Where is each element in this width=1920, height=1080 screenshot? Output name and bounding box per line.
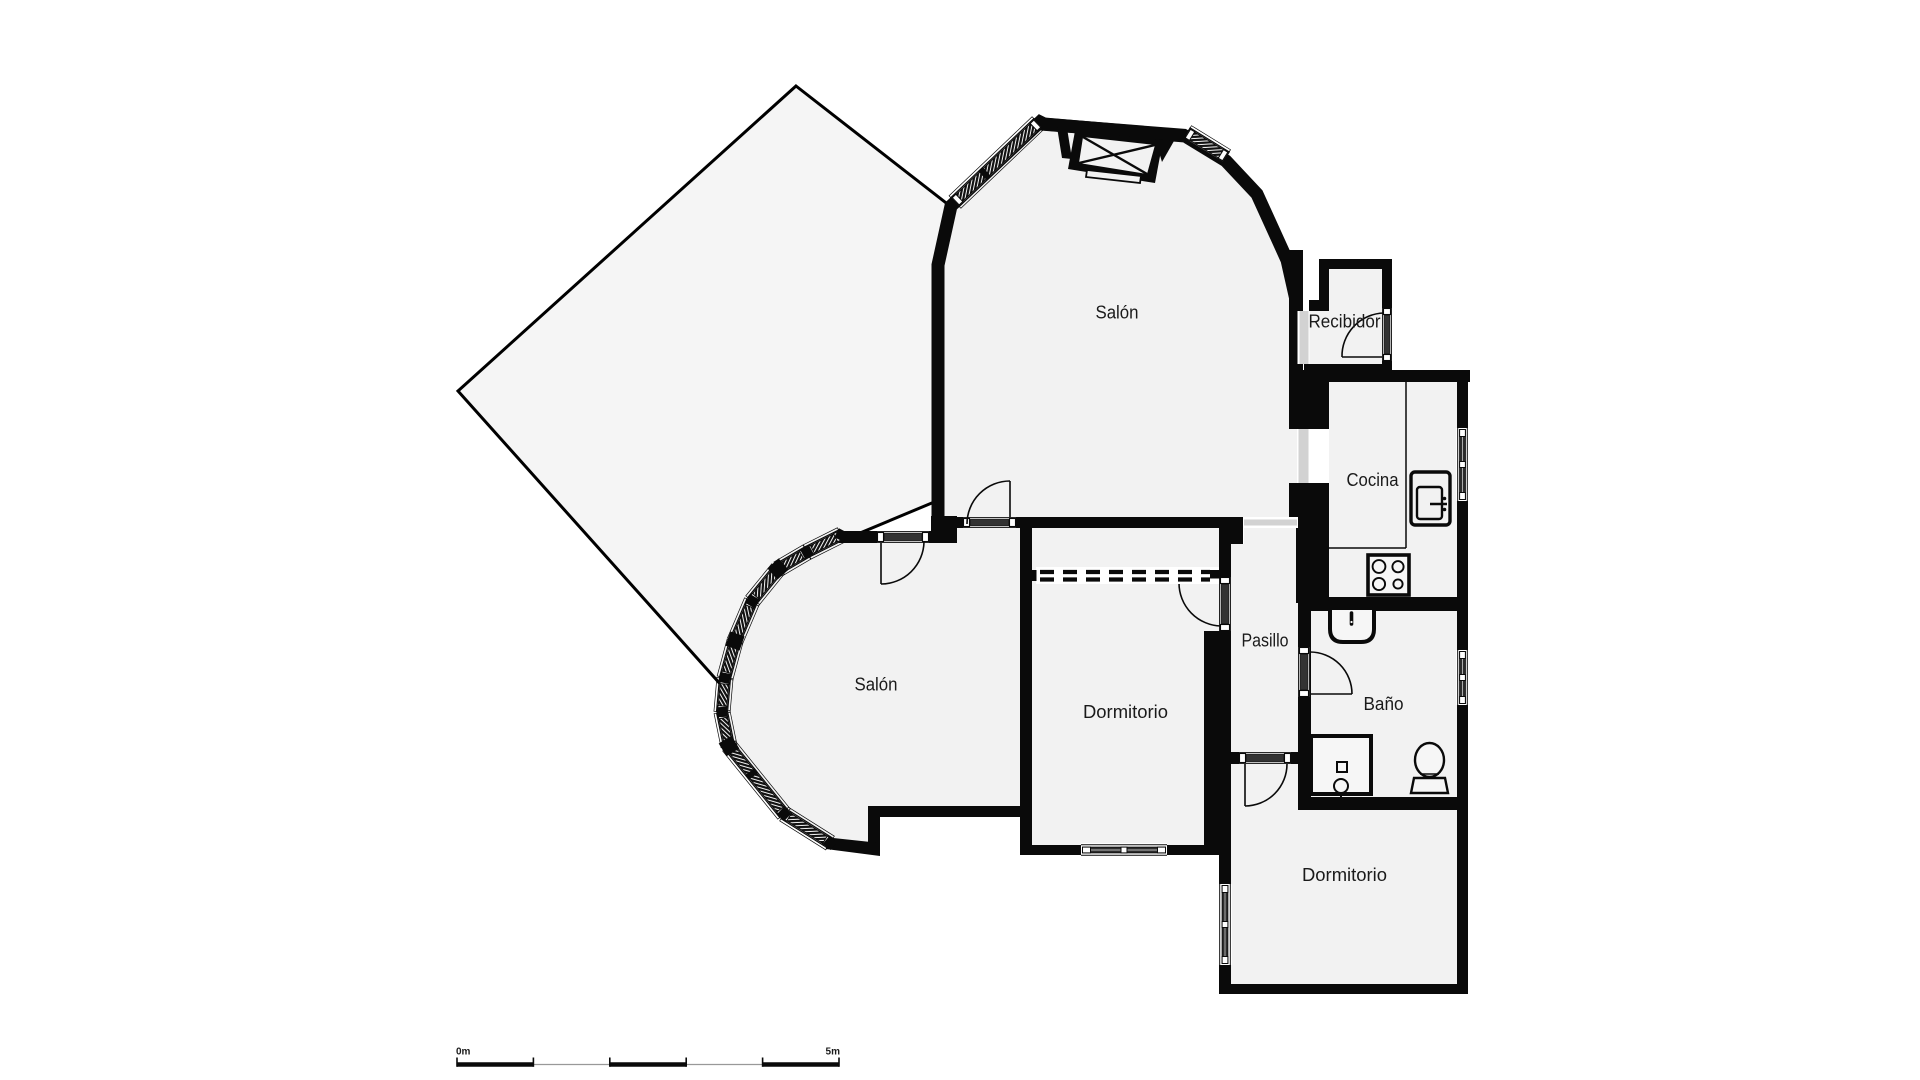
svg-text:Recibidor: Recibidor	[1309, 312, 1381, 332]
svg-text:Dormitorio: Dormitorio	[1083, 702, 1168, 722]
svg-text:Baño: Baño	[1364, 694, 1404, 714]
svg-text:0m: 0m	[456, 1047, 471, 1058]
svg-text:Salón: Salón	[1096, 303, 1139, 323]
svg-text:5m: 5m	[826, 1047, 841, 1058]
svg-text:Dormitorio: Dormitorio	[1302, 865, 1387, 885]
svg-text:Cocina: Cocina	[1347, 470, 1400, 490]
svg-text:Pasillo: Pasillo	[1242, 631, 1289, 651]
svg-text:Salón: Salón	[855, 675, 898, 695]
